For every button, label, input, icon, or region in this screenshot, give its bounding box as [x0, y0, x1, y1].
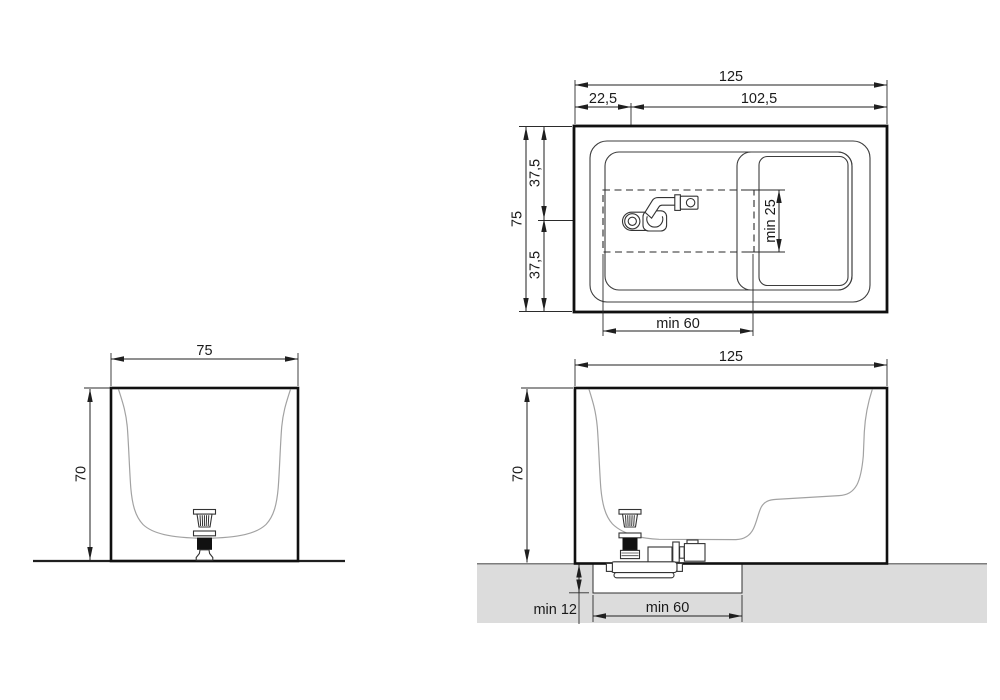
dim-text-recess-width: min 60: [646, 600, 690, 616]
fitting-end-port: [686, 199, 694, 207]
strainer-slot: [626, 515, 627, 526]
overflow-box: [648, 547, 672, 562]
plan-view: 125 22,5 102,5 75 37,5 37,5 min 25 min 6…: [510, 69, 888, 336]
pipe-connector: [680, 547, 685, 558]
dim-text-length: 125: [719, 349, 743, 365]
strainer-slot: [634, 515, 635, 526]
waste-collar: [621, 550, 640, 558]
dim-text-depth-front: 37,5: [528, 159, 544, 187]
trap-right-step: [677, 563, 682, 571]
front-view: 75 70: [33, 343, 345, 561]
strainer-cap: [194, 510, 216, 515]
fitting-flange: [675, 195, 681, 211]
dim-text-height: 70: [511, 466, 527, 482]
plan-tub-outer-shell: [574, 126, 887, 312]
trap-body: [611, 562, 677, 573]
dim-text-width-right: 102,5: [741, 91, 777, 107]
outlet-box: [684, 544, 705, 562]
side-view: 125 70 min 12 min 60: [477, 349, 987, 624]
waste-body: [623, 538, 638, 550]
dim-text-width-total: 125: [719, 69, 743, 85]
dim-text-height: 70: [74, 466, 90, 482]
strainer-slot: [200, 515, 201, 526]
waste-body: [197, 538, 212, 550]
trap-base-plate: [614, 573, 674, 578]
drawing-sheet: 125 22,5 102,5 75 37,5 37,5 min 25 min 6…: [0, 0, 1000, 700]
dim-text-recess-depth: min 12: [533, 602, 577, 618]
dim-text-width: 75: [196, 343, 212, 359]
technical-drawing: 125 22,5 102,5 75 37,5 37,5 min 25 min 6…: [0, 0, 1000, 700]
trap-left-cap: [606, 563, 612, 571]
dim-text-depth-back: 37,5: [528, 251, 544, 279]
waste-flange: [194, 531, 216, 536]
strainer-cap: [619, 510, 641, 515]
waste-flange: [619, 533, 641, 538]
strainer-slot: [208, 515, 209, 526]
dim-text-drain-zone-min: min 60: [656, 316, 700, 332]
drain-hole-inner: [628, 217, 636, 225]
dim-text-width-left: 22,5: [589, 91, 617, 107]
overflow-standpipe: [673, 542, 679, 562]
dim-text-depth-total: 75: [510, 211, 526, 227]
dim-text-seat-min: min 25: [763, 199, 779, 243]
